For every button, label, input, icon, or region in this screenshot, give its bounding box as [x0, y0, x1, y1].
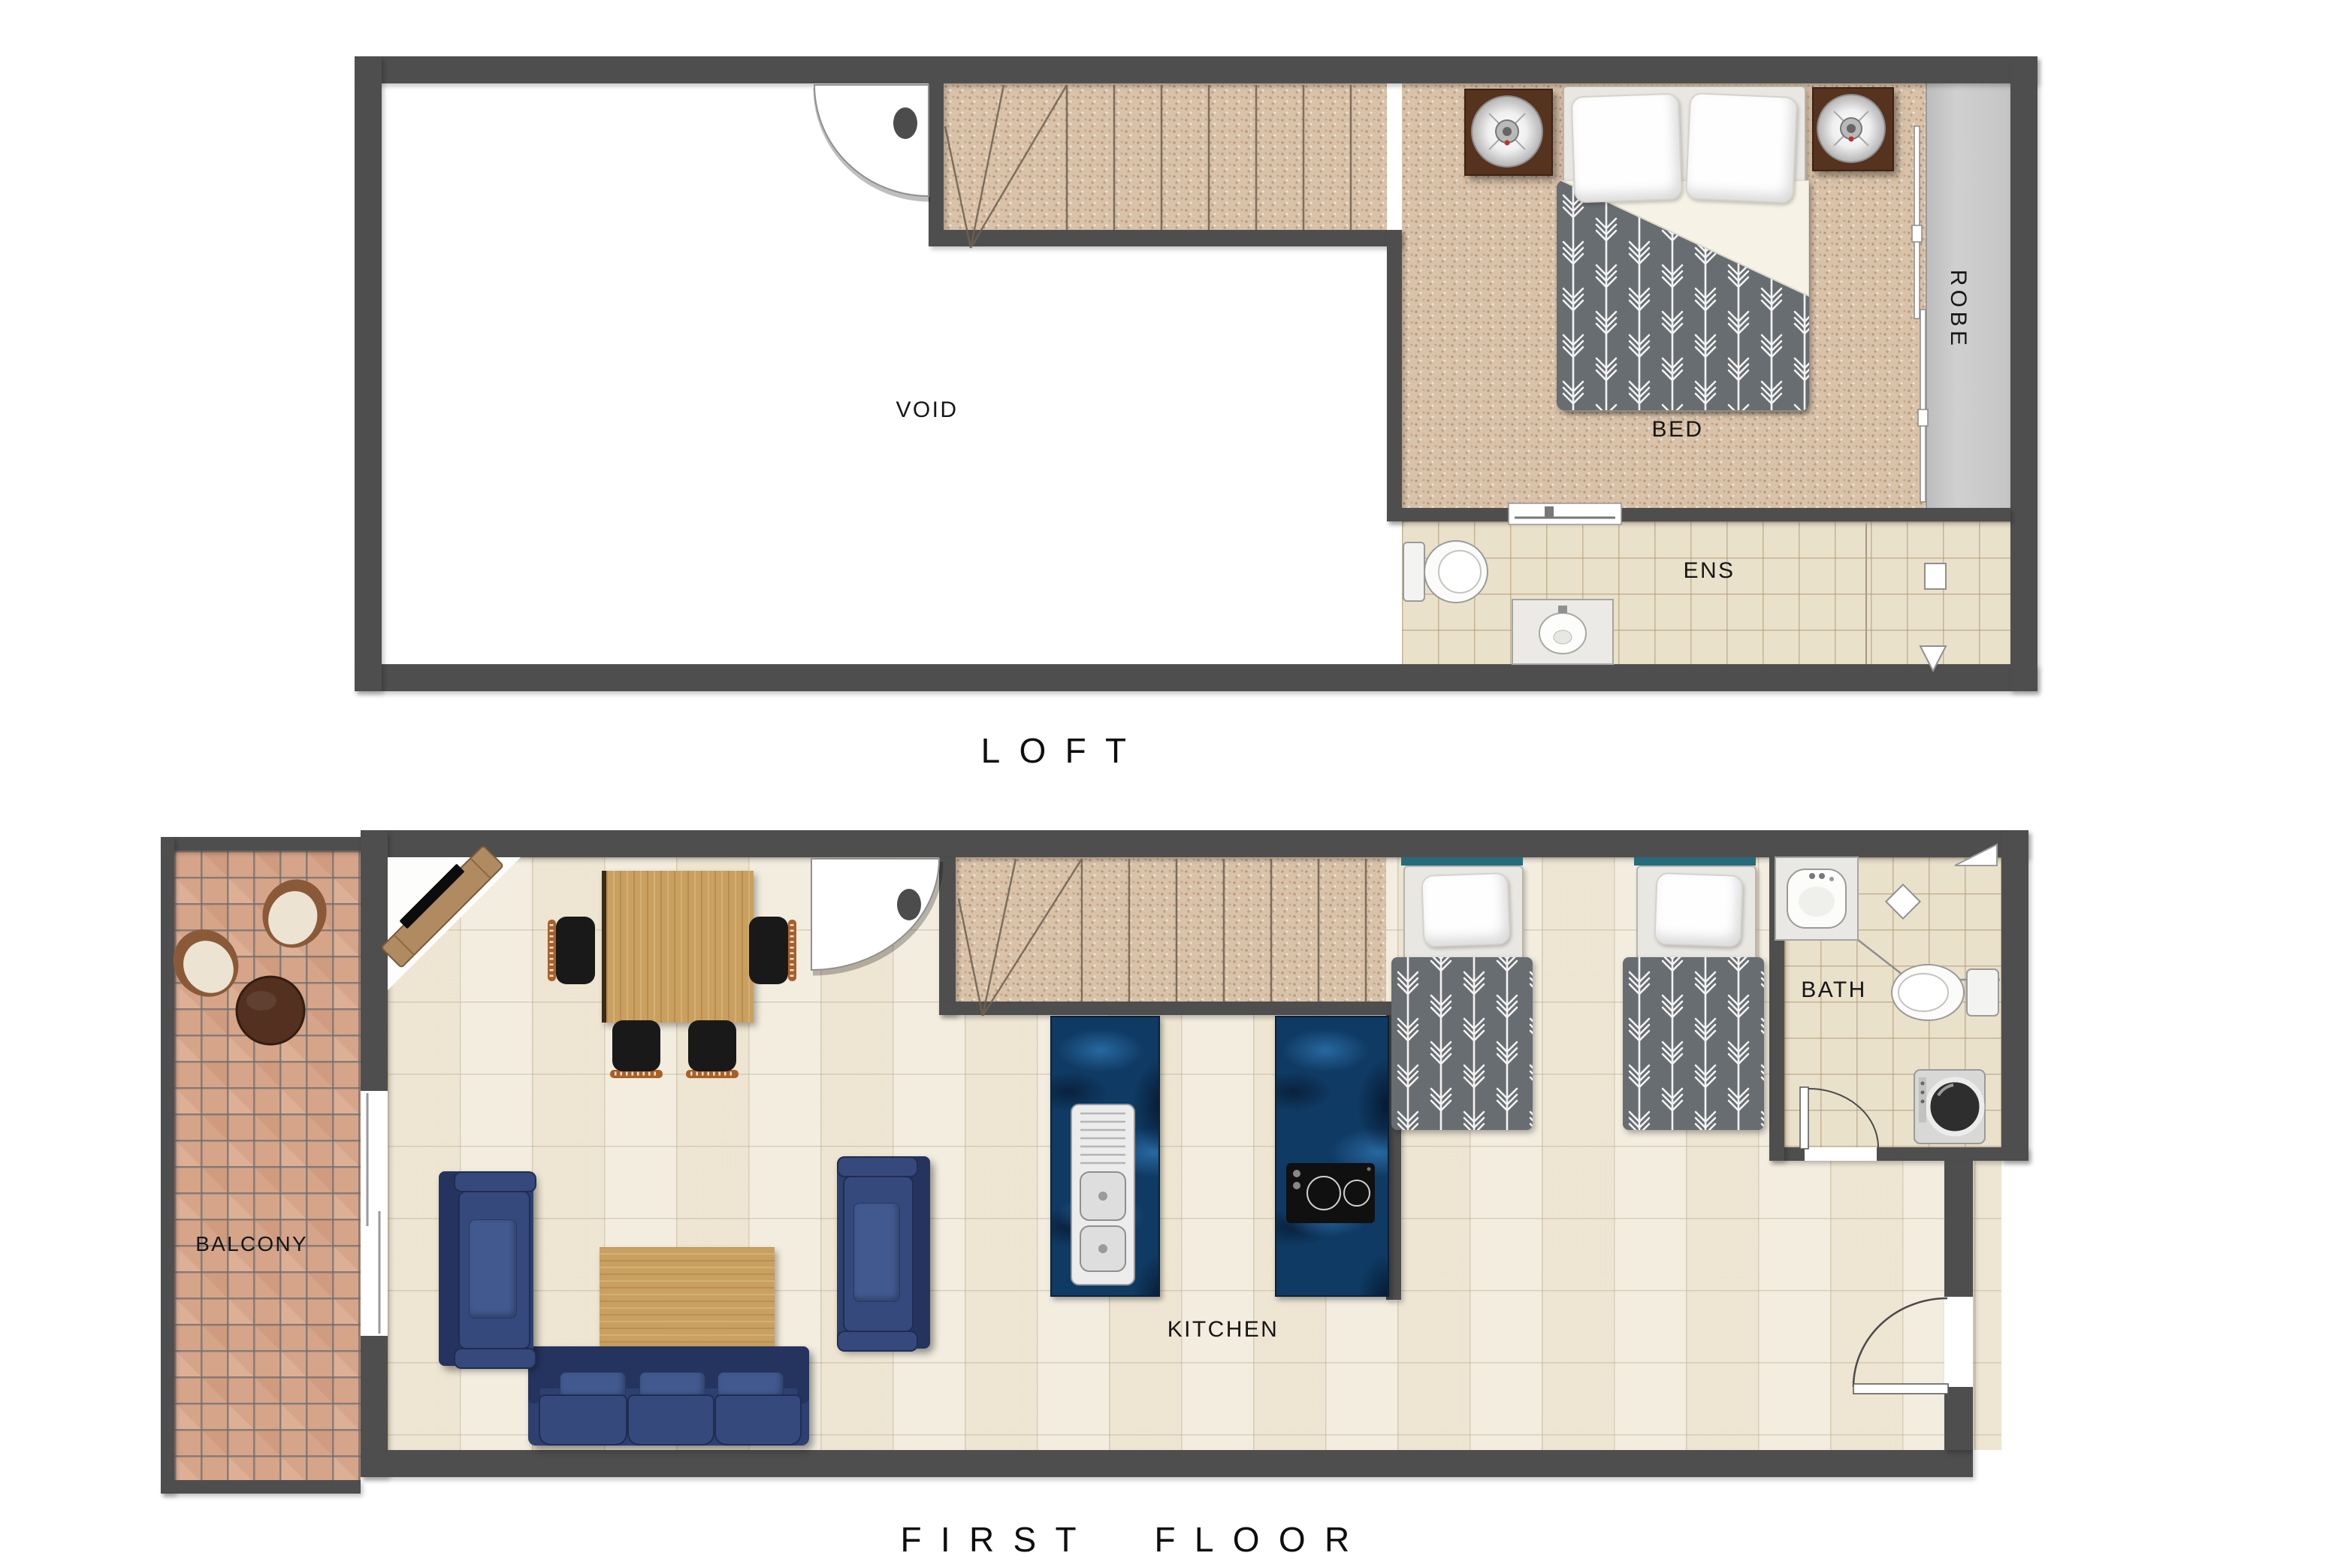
- single-bed1-headboard: [1401, 857, 1523, 866]
- dining-table: [602, 871, 754, 1023]
- single-bed2-duvet: [1623, 957, 1764, 1131]
- first-floor-title: FIRST FLOOR: [901, 1519, 1369, 1560]
- ensuite-top-wall: [1387, 508, 2010, 521]
- ensuite-door-gap: [1509, 508, 1621, 521]
- single-bed2-pillow: [1654, 872, 1743, 947]
- bedside-table-right: [1812, 87, 1894, 171]
- sofa-seat: [714, 1394, 802, 1446]
- single-bed1-duvet: [1391, 957, 1533, 1131]
- room-label-robe: ROBE: [1945, 270, 1971, 350]
- armchair-pillow: [469, 1219, 517, 1319]
- sofa-seat: [539, 1394, 627, 1446]
- ff-stair-bottom-wall: [939, 1002, 1401, 1015]
- armchair-arm: [454, 1171, 536, 1192]
- sofa: [528, 1346, 809, 1446]
- bath-door-gap: [1805, 1147, 1877, 1161]
- ff-wall-bottom: [361, 1450, 1973, 1477]
- balcony-floor: [174, 850, 361, 1480]
- loft-title: LOFT: [981, 730, 1146, 771]
- loft-wall-bottom: [355, 664, 2037, 691]
- bath-left-wall: [1769, 857, 1784, 1161]
- loft-stairs-carpet: [944, 83, 1387, 231]
- loft-stair-left-wall: [929, 83, 944, 234]
- sofa-seat: [627, 1394, 714, 1446]
- kitchen-cooktop-bench: [1275, 1016, 1389, 1297]
- balcony-slider-gap: [361, 1091, 388, 1336]
- loft-bedroom-wall: [1387, 230, 1402, 521]
- armchair-arm: [454, 1348, 536, 1369]
- balcony-wall-left: [161, 837, 174, 1494]
- loft-wall-top: [355, 56, 2037, 83]
- ff-stairs-carpet: [956, 857, 1386, 1002]
- floor-plan-canvas: VOID BED ENS ROBE LOFT BALCONY KITCHEN B…: [0, 0, 2332, 1568]
- entry-door-gap: [1944, 1297, 1973, 1387]
- ff-wall-top: [361, 830, 2028, 857]
- armchair-arm: [837, 1156, 918, 1177]
- loft-stair-bottom-wall: [929, 230, 1402, 246]
- room-label-kitchen: KITCHEN: [1168, 1317, 1279, 1343]
- balcony-wall-top: [161, 837, 361, 850]
- single-bed1-pillow: [1421, 872, 1510, 947]
- loft-bed-duvet: [1557, 180, 1809, 412]
- balcony-wall-bottom: [161, 1480, 361, 1494]
- loft-pillow-left: [1571, 93, 1683, 204]
- ff-wall-right-upper: [2001, 830, 2028, 1161]
- room-label-void: VOID: [896, 397, 959, 423]
- kitchen-island-bench: [1050, 1016, 1160, 1297]
- armchair-pillow: [853, 1203, 900, 1302]
- loft-pillow-right: [1685, 92, 1798, 204]
- ensuite-floor: [1402, 521, 2010, 664]
- ff-stair-left-wall: [939, 857, 956, 1015]
- armchair-right: [837, 1156, 930, 1349]
- armchair-left: [439, 1171, 533, 1366]
- armchair-arm: [837, 1331, 918, 1352]
- loft-wall-right: [2010, 56, 2037, 691]
- room-label-bed: BED: [1652, 417, 1704, 443]
- armchair-back: [439, 1171, 460, 1366]
- room-label-bath: BATH: [1801, 977, 1866, 1003]
- room-label-balcony: BALCONY: [195, 1232, 308, 1256]
- single-bed2-headboard: [1634, 857, 1756, 866]
- loft-wall-left: [355, 56, 382, 691]
- room-label-ens: ENS: [1684, 558, 1735, 584]
- bedside-table-left: [1464, 89, 1553, 176]
